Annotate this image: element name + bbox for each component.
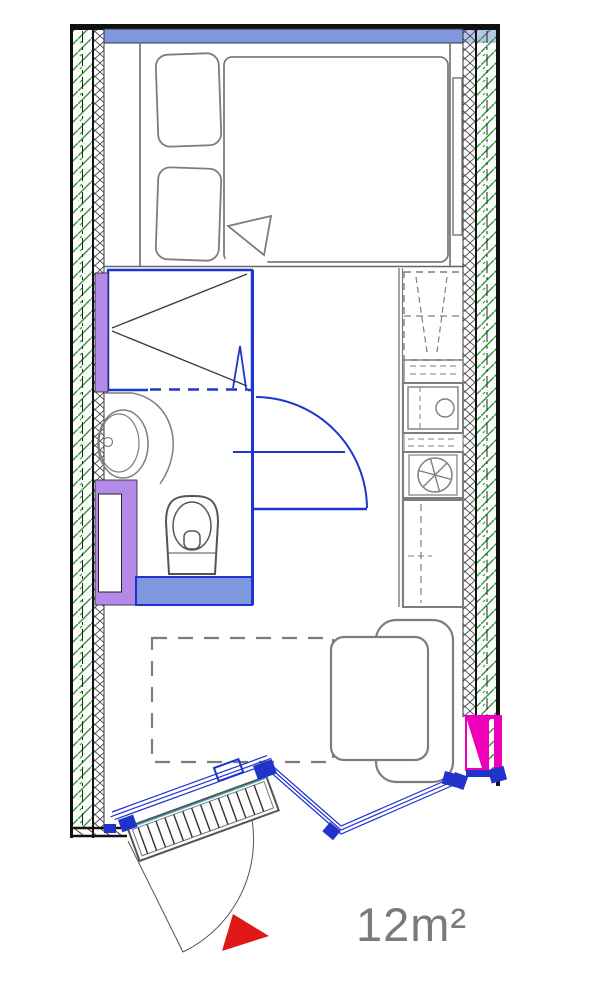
left-wall-outer-line bbox=[70, 24, 73, 838]
bathroom-threshold-bar bbox=[136, 577, 252, 605]
kitchen-sink-icon bbox=[403, 383, 463, 433]
extractor-hob-icon bbox=[403, 452, 463, 498]
kitchen-block bbox=[399, 268, 463, 607]
left-wall-mid-line bbox=[92, 24, 94, 838]
shower-cabin-icon bbox=[108, 270, 252, 394]
entrance-arrow-icon bbox=[222, 914, 269, 951]
entry-hatch-icon bbox=[450, 715, 507, 790]
duct-cabinet bbox=[99, 494, 122, 592]
bed-area bbox=[104, 43, 463, 267]
floorplan-canvas: 12m² bbox=[0, 0, 614, 1000]
fold-out-bed-outline bbox=[152, 638, 333, 762]
right-wall-outer-line bbox=[496, 24, 500, 786]
refrigerator-icon bbox=[403, 500, 463, 607]
bedside-shelf-icon bbox=[453, 78, 462, 235]
right-wall-mid-line bbox=[475, 24, 477, 717]
pillow-icon bbox=[155, 167, 221, 261]
kitchen-drawer-2 bbox=[404, 433, 463, 452]
window-sill bbox=[104, 29, 463, 43]
pillow-icon bbox=[155, 53, 221, 147]
left-wall-crosshatch bbox=[94, 29, 104, 827]
area-label: 12m² bbox=[356, 898, 467, 951]
wet-wall-panel-shower bbox=[95, 273, 108, 392]
bathroom bbox=[95, 270, 367, 605]
bottom-wall-stub bbox=[70, 828, 127, 836]
gangway-ladder-icon bbox=[127, 777, 278, 861]
toilet-icon bbox=[166, 496, 218, 574]
vanity-washbasin-icon bbox=[98, 393, 173, 484]
kitchen-drawer bbox=[404, 360, 463, 383]
lounge bbox=[152, 620, 453, 782]
entry-door-leaf bbox=[128, 841, 183, 952]
armchair-seat-icon bbox=[331, 637, 428, 760]
right-wall-crosshatch bbox=[463, 29, 475, 717]
upper-cabinets-icon bbox=[404, 272, 463, 360]
